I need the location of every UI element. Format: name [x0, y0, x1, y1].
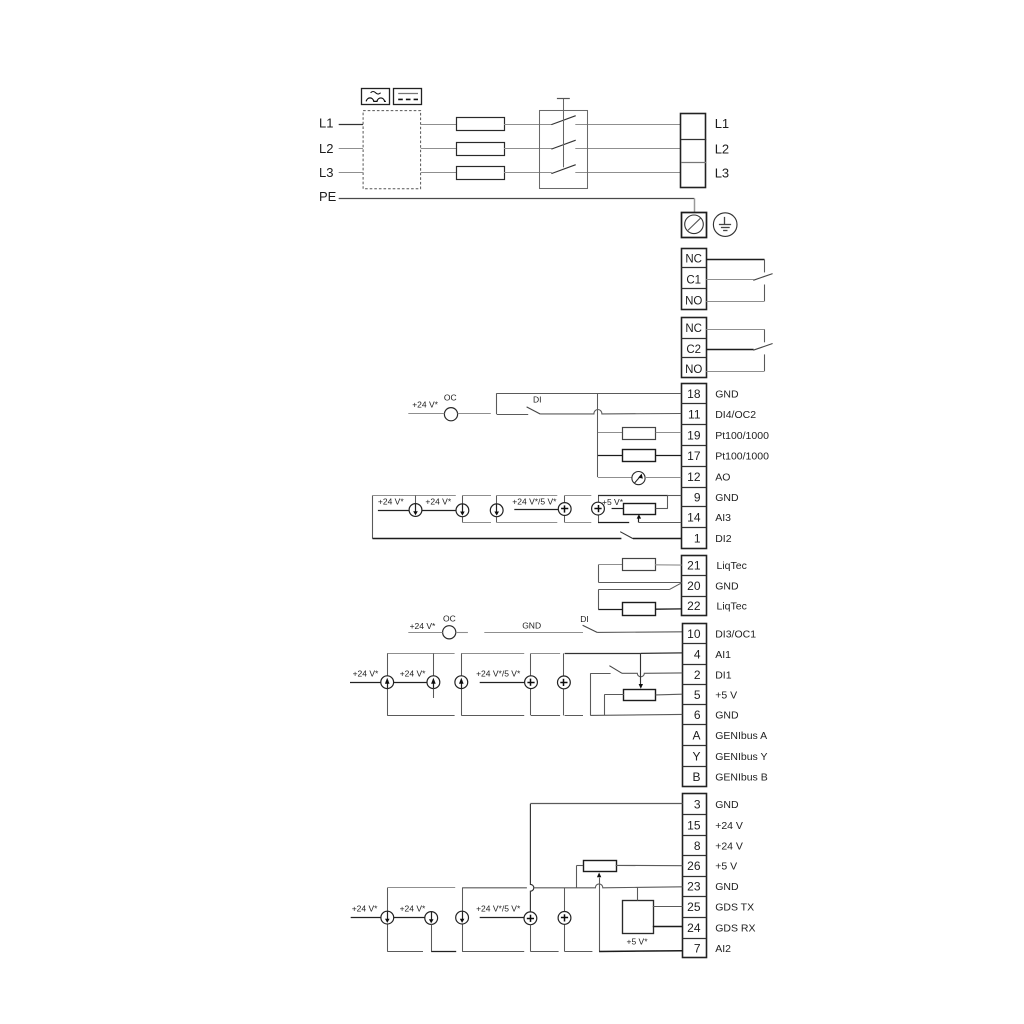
svg-text:C2: C2 [686, 344, 701, 356]
svg-text:A: A [692, 729, 700, 743]
svg-text:+24 V*: +24 V* [353, 669, 379, 679]
svg-text:GND: GND [715, 492, 739, 504]
svg-text:+5 V: +5 V [715, 689, 737, 701]
svg-text:+24 V*: +24 V* [410, 621, 436, 631]
svg-text:GDS TX: GDS TX [715, 902, 754, 914]
svg-text:7: 7 [694, 942, 701, 956]
svg-text:GND: GND [715, 580, 739, 592]
svg-text:C1: C1 [686, 274, 701, 286]
svg-text:20: 20 [687, 579, 701, 593]
svg-text:+24 V*: +24 V* [400, 904, 426, 914]
svg-text:+24 V*: +24 V* [378, 497, 404, 507]
svg-text:+24 V*: +24 V* [400, 669, 426, 679]
svg-text:GENIbus B: GENIbus B [715, 772, 768, 784]
svg-text:+24 V*/5 V*: +24 V*/5 V* [512, 497, 557, 507]
svg-text:10: 10 [687, 627, 701, 641]
svg-text:DI1: DI1 [715, 669, 732, 681]
svg-text:+24 V: +24 V [715, 820, 743, 832]
svg-text:L2: L2 [715, 142, 729, 157]
svg-text:LiqTec: LiqTec [717, 560, 747, 572]
svg-text:1: 1 [694, 532, 701, 546]
svg-text:+24 V*: +24 V* [412, 399, 438, 409]
svg-text:GND: GND [715, 881, 739, 893]
svg-text:DI: DI [533, 394, 542, 404]
svg-text:DI2: DI2 [715, 533, 732, 545]
svg-text:PE: PE [319, 189, 337, 204]
svg-text:L1: L1 [319, 116, 333, 131]
svg-text:L1: L1 [715, 116, 729, 131]
svg-text:+24 V: +24 V [715, 840, 743, 852]
svg-text:Pt100/1000: Pt100/1000 [715, 430, 769, 442]
svg-text:12: 12 [687, 470, 701, 484]
svg-text:26: 26 [687, 859, 701, 873]
svg-text:11: 11 [688, 408, 701, 422]
svg-text:6: 6 [694, 708, 701, 722]
svg-text:AO: AO [715, 472, 730, 484]
svg-text:5: 5 [694, 688, 701, 702]
svg-text:+24 V*/5 V*: +24 V*/5 V* [476, 669, 521, 679]
svg-text:GND: GND [522, 620, 541, 630]
svg-text:NO: NO [685, 295, 702, 307]
svg-text:+5 V*: +5 V* [602, 497, 624, 507]
svg-text:24: 24 [687, 921, 701, 935]
svg-text:L2: L2 [319, 141, 333, 156]
svg-text:AI1: AI1 [715, 649, 731, 661]
svg-text:14: 14 [687, 511, 701, 525]
svg-text:DI3/OC1: DI3/OC1 [715, 629, 756, 641]
svg-text:8: 8 [694, 839, 701, 853]
svg-text:DI: DI [580, 614, 589, 624]
svg-text:23: 23 [687, 880, 701, 894]
svg-text:L3: L3 [319, 165, 333, 180]
svg-text:15: 15 [687, 818, 701, 832]
svg-text:AI3: AI3 [715, 512, 731, 524]
svg-text:21: 21 [687, 559, 701, 573]
svg-text:Pt100/1000: Pt100/1000 [715, 451, 769, 463]
svg-text:4: 4 [694, 648, 701, 662]
svg-text:+24 V*: +24 V* [352, 904, 378, 914]
svg-text:Y: Y [692, 750, 700, 764]
svg-text:25: 25 [687, 900, 701, 914]
svg-text:+24 V*/5 V*: +24 V*/5 V* [476, 904, 521, 914]
svg-text:3: 3 [694, 798, 701, 812]
svg-text:B: B [692, 770, 700, 784]
svg-text:18: 18 [687, 387, 701, 401]
svg-text:LiqTec: LiqTec [717, 601, 747, 613]
svg-text:19: 19 [687, 428, 701, 442]
svg-text:2: 2 [694, 668, 701, 682]
svg-text:+5 V: +5 V [715, 861, 737, 873]
svg-text:+5 V*: +5 V* [627, 936, 649, 946]
svg-text:GDS RX: GDS RX [715, 922, 755, 934]
svg-text:17: 17 [687, 449, 701, 463]
svg-text:GND: GND [715, 389, 739, 401]
svg-text:OC: OC [443, 614, 456, 624]
svg-text:DI4/OC2: DI4/OC2 [715, 409, 756, 421]
svg-text:NC: NC [685, 323, 702, 335]
svg-text:L3: L3 [715, 165, 729, 180]
svg-text:GENIbus Y: GENIbus Y [715, 751, 767, 763]
svg-text:OC: OC [444, 393, 457, 403]
svg-text:NO: NO [685, 364, 702, 376]
svg-text:GENIbus A: GENIbus A [715, 730, 767, 742]
svg-text:GND: GND [715, 710, 739, 722]
svg-text:9: 9 [694, 490, 701, 504]
svg-text:GND: GND [715, 799, 739, 811]
svg-text:+24 V*: +24 V* [425, 497, 451, 507]
svg-text:NC: NC [685, 253, 702, 265]
svg-text:22: 22 [687, 599, 701, 613]
svg-text:AI2: AI2 [715, 943, 731, 955]
